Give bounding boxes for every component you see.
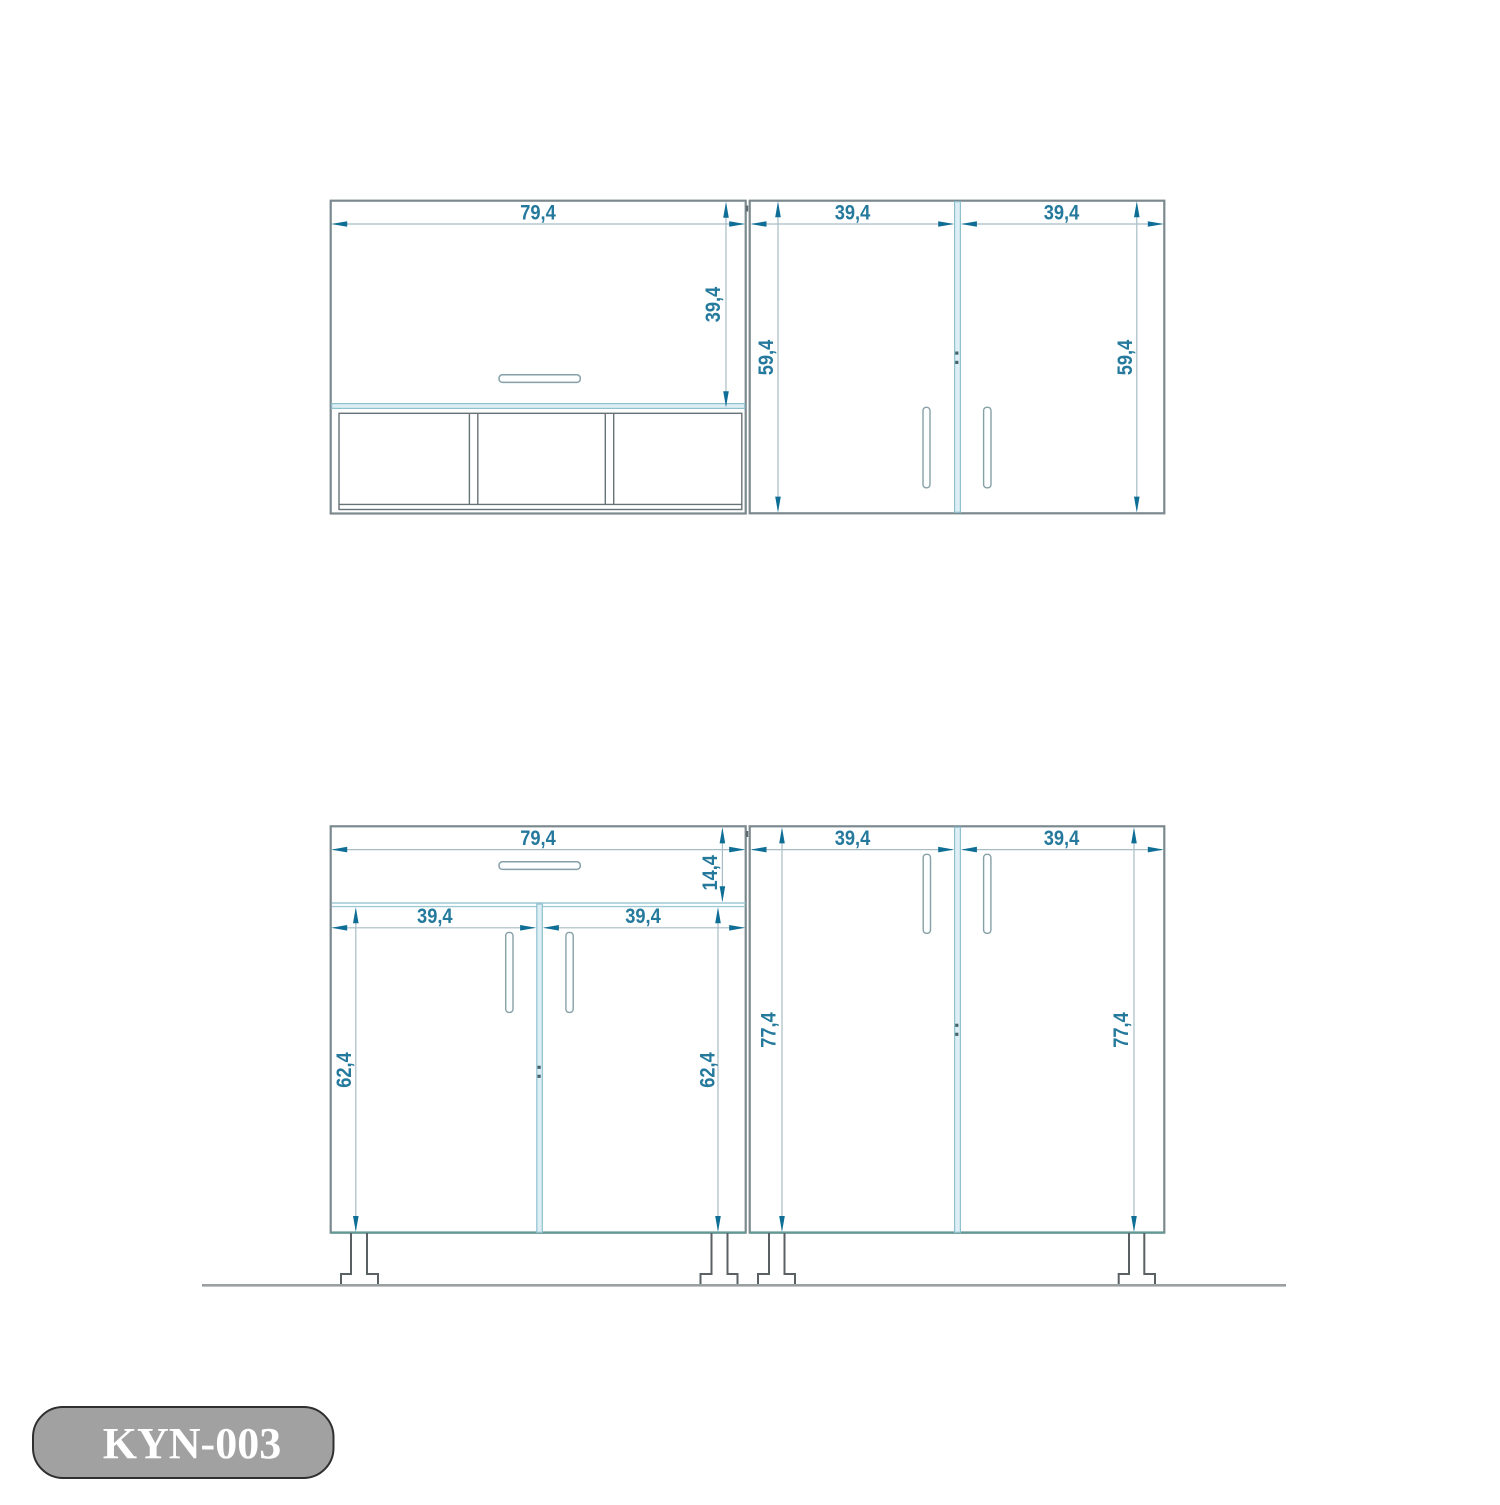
svg-text:39,4: 39,4 bbox=[1044, 827, 1080, 850]
svg-text:79,4: 79,4 bbox=[520, 827, 556, 850]
svg-text:14,4: 14,4 bbox=[699, 855, 722, 891]
svg-text:39,4: 39,4 bbox=[835, 827, 871, 850]
svg-text:39,4: 39,4 bbox=[702, 286, 725, 322]
svg-text:62,4: 62,4 bbox=[333, 1052, 356, 1088]
svg-text:KYN-003: KYN-003 bbox=[103, 1419, 281, 1468]
svg-text:39,4: 39,4 bbox=[1044, 202, 1080, 225]
svg-text:39,4: 39,4 bbox=[417, 905, 453, 928]
svg-text:59,4: 59,4 bbox=[1114, 339, 1137, 375]
svg-text:77,4: 77,4 bbox=[757, 1012, 780, 1048]
svg-text:39,4: 39,4 bbox=[835, 202, 871, 225]
svg-text:79,4: 79,4 bbox=[520, 202, 556, 225]
svg-text:59,4: 59,4 bbox=[755, 339, 778, 375]
svg-text:39,4: 39,4 bbox=[625, 905, 661, 928]
svg-text:77,4: 77,4 bbox=[1110, 1012, 1133, 1048]
svg-text:62,4: 62,4 bbox=[696, 1052, 719, 1088]
